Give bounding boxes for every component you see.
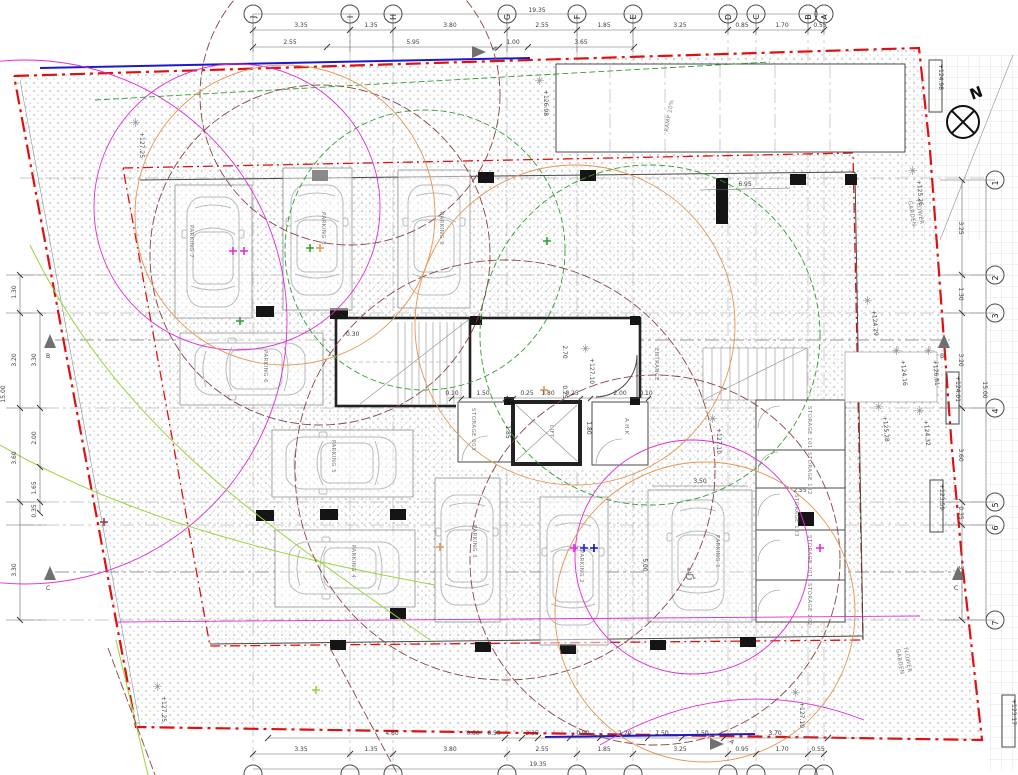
grid-label: 7: [991, 620, 1000, 625]
dim: 0.10: [639, 390, 653, 397]
dim: 3.35: [294, 746, 308, 753]
dim: 2.55: [535, 746, 549, 753]
storage-201-label: STORAGE 201: [806, 535, 812, 578]
floor-plan-canvas: RAMP 20%: [0, 0, 1018, 775]
dim: 1.00: [506, 39, 520, 46]
dim: 2.55: [535, 22, 549, 29]
exterior-stairs: [703, 348, 807, 400]
level-nw: +127.25: [138, 132, 145, 158]
dim: 3.20: [11, 353, 18, 367]
section-flag-c-left: C: [44, 566, 56, 592]
grid-label: H: [389, 14, 398, 20]
level-p1: +127.10: [715, 428, 722, 454]
storage-003-label: STORAGE 003: [470, 408, 476, 451]
dim: 1.50: [695, 730, 709, 737]
dim: 6.95: [738, 181, 752, 188]
dim: 1.50: [476, 390, 490, 397]
parking-3-label: PARKING 3: [471, 525, 477, 558]
dim: 1.85: [597, 746, 611, 753]
dim: 1.65: [31, 481, 38, 495]
section-label: C: [954, 585, 958, 592]
section-flag-a-bottom: A: [710, 738, 736, 750]
dim: 3.30: [11, 563, 18, 577]
level-ramp: +126.98: [542, 90, 549, 116]
dim: 5.95: [406, 39, 420, 46]
section-label: B: [46, 353, 50, 360]
entrance-label: ENTRANCE: [653, 348, 659, 381]
dim: 0.25: [561, 385, 568, 399]
dim: 3.20: [957, 353, 964, 367]
dim-total-bottom: 19.35: [529, 761, 546, 768]
dim: 3.50: [693, 478, 707, 485]
dim: 2.00: [613, 390, 627, 397]
grid-label: E: [629, 14, 638, 19]
parking-2-label: PARKING 2: [578, 550, 584, 583]
dim: 0.25: [520, 390, 534, 397]
dim: 3.35: [294, 22, 308, 29]
dim: 1.35: [364, 22, 378, 29]
dim: 2.00: [31, 431, 38, 445]
dim: 3.25: [673, 746, 687, 753]
dim: 2.35: [525, 730, 539, 737]
dim: 0.10: [445, 390, 459, 397]
dim: 0.85: [735, 22, 749, 29]
svg-text:+123.59: +123.59: [938, 484, 945, 510]
dim: 1.30: [957, 287, 964, 301]
section-label: C: [46, 585, 50, 592]
dim: 1.35: [364, 746, 378, 753]
dim-total-right: 15.00: [981, 381, 988, 398]
ramp: RAMP 20%: [556, 64, 905, 152]
dim: 1.85: [597, 22, 611, 29]
dim: 0.55: [813, 22, 827, 29]
dim: 0.55: [811, 746, 825, 753]
dim: 1.50: [655, 730, 669, 737]
svg-text:+123.17: +123.17: [1010, 699, 1017, 725]
parking-1-label: PARKING 1: [714, 535, 720, 568]
grid-label: 5: [991, 502, 1000, 507]
dim: 3.60: [11, 451, 18, 465]
dim: 1.80: [541, 390, 555, 397]
parking-5-label: PARKING 5: [330, 440, 336, 473]
dim: 2.55: [283, 39, 297, 46]
svg-text:+124.01: +124.01: [954, 376, 961, 402]
dim-total-top: 19.35: [528, 7, 545, 14]
dim: 3.80: [443, 746, 457, 753]
storage-102-label: STORAGE 102: [806, 452, 812, 495]
parking-4-label: PARKING 4: [350, 545, 356, 578]
dim: 0.90: [576, 730, 590, 737]
grid-label: 4: [991, 408, 1000, 413]
dim-total-left: 15.00: [0, 385, 7, 402]
parking-7-label: PARKING 7: [188, 225, 194, 258]
grid-label: F: [573, 14, 582, 19]
dim: 0.95: [735, 746, 749, 753]
section-flag-b-left: B: [44, 334, 56, 360]
dim: 1.70: [775, 22, 789, 29]
dim: 4.60: [385, 730, 399, 737]
grid-label: G: [503, 14, 512, 20]
dim: 3.80: [443, 22, 457, 29]
level-hall: +127.10: [588, 358, 595, 384]
dim: 5.00: [641, 558, 648, 572]
dim: 2.70: [561, 345, 568, 359]
dim: 1.70: [775, 746, 789, 753]
dim: 0.50: [487, 730, 501, 737]
dim: 3.70: [768, 730, 782, 737]
grid-label: 2: [991, 275, 1000, 280]
ahk-label: A.H.K: [623, 418, 629, 435]
floor-plan-page: RAMP 20%: [0, 0, 1018, 775]
grid-top: J I H G F E D C B A 19.35 3.35 1.35 3.80…: [244, 5, 833, 58]
grid-label: 3: [991, 313, 1000, 318]
dim: 3.30: [31, 353, 38, 367]
grid-label: 1: [991, 180, 1000, 185]
dim: 3.25: [957, 221, 964, 235]
grid-label: A: [820, 14, 829, 20]
grid-label: D: [724, 14, 733, 20]
dim: 0.35: [31, 504, 38, 518]
dim: 1.80: [585, 421, 592, 435]
level-storage-col: +127.10: [798, 702, 805, 728]
grid-label: 6: [991, 525, 1000, 530]
grid-label: C: [752, 14, 761, 20]
storage-101-label: STORAGE 101: [806, 406, 812, 449]
grid-label: B: [804, 14, 813, 20]
grid-label: I: [346, 16, 355, 18]
dims-left: 1.30 3.20 3.60 3.30 3.30 2.00 1.65 0.35 …: [0, 272, 56, 623]
dim: 3.25: [673, 22, 687, 29]
grid-label: J: [249, 16, 258, 19]
section-label: B: [940, 353, 944, 360]
dim: 3.65: [574, 39, 588, 46]
storage-103-label: STORAGE 103: [793, 494, 799, 537]
dim: 0.30: [346, 331, 360, 338]
dim: 2.55: [793, 487, 807, 494]
dim: 0.60: [466, 730, 480, 737]
storage-202-label: STORAGE 202: [806, 583, 812, 626]
parking-6-label: PARKING 6: [262, 350, 268, 383]
level-sw: +127.25: [160, 696, 167, 722]
dim: 0.35: [957, 506, 964, 520]
dim: 1.20: [618, 730, 632, 737]
lift-label: LIFT: [548, 425, 554, 438]
dim: 1.30: [11, 285, 18, 299]
parking-9-label: PARKING 9: [438, 212, 444, 245]
dim: 3.60: [957, 448, 964, 462]
parking-8-label: PARKING 8: [320, 212, 326, 245]
dim: 1.85: [504, 425, 511, 439]
svg-text:+124.98: +124.98: [937, 64, 944, 90]
